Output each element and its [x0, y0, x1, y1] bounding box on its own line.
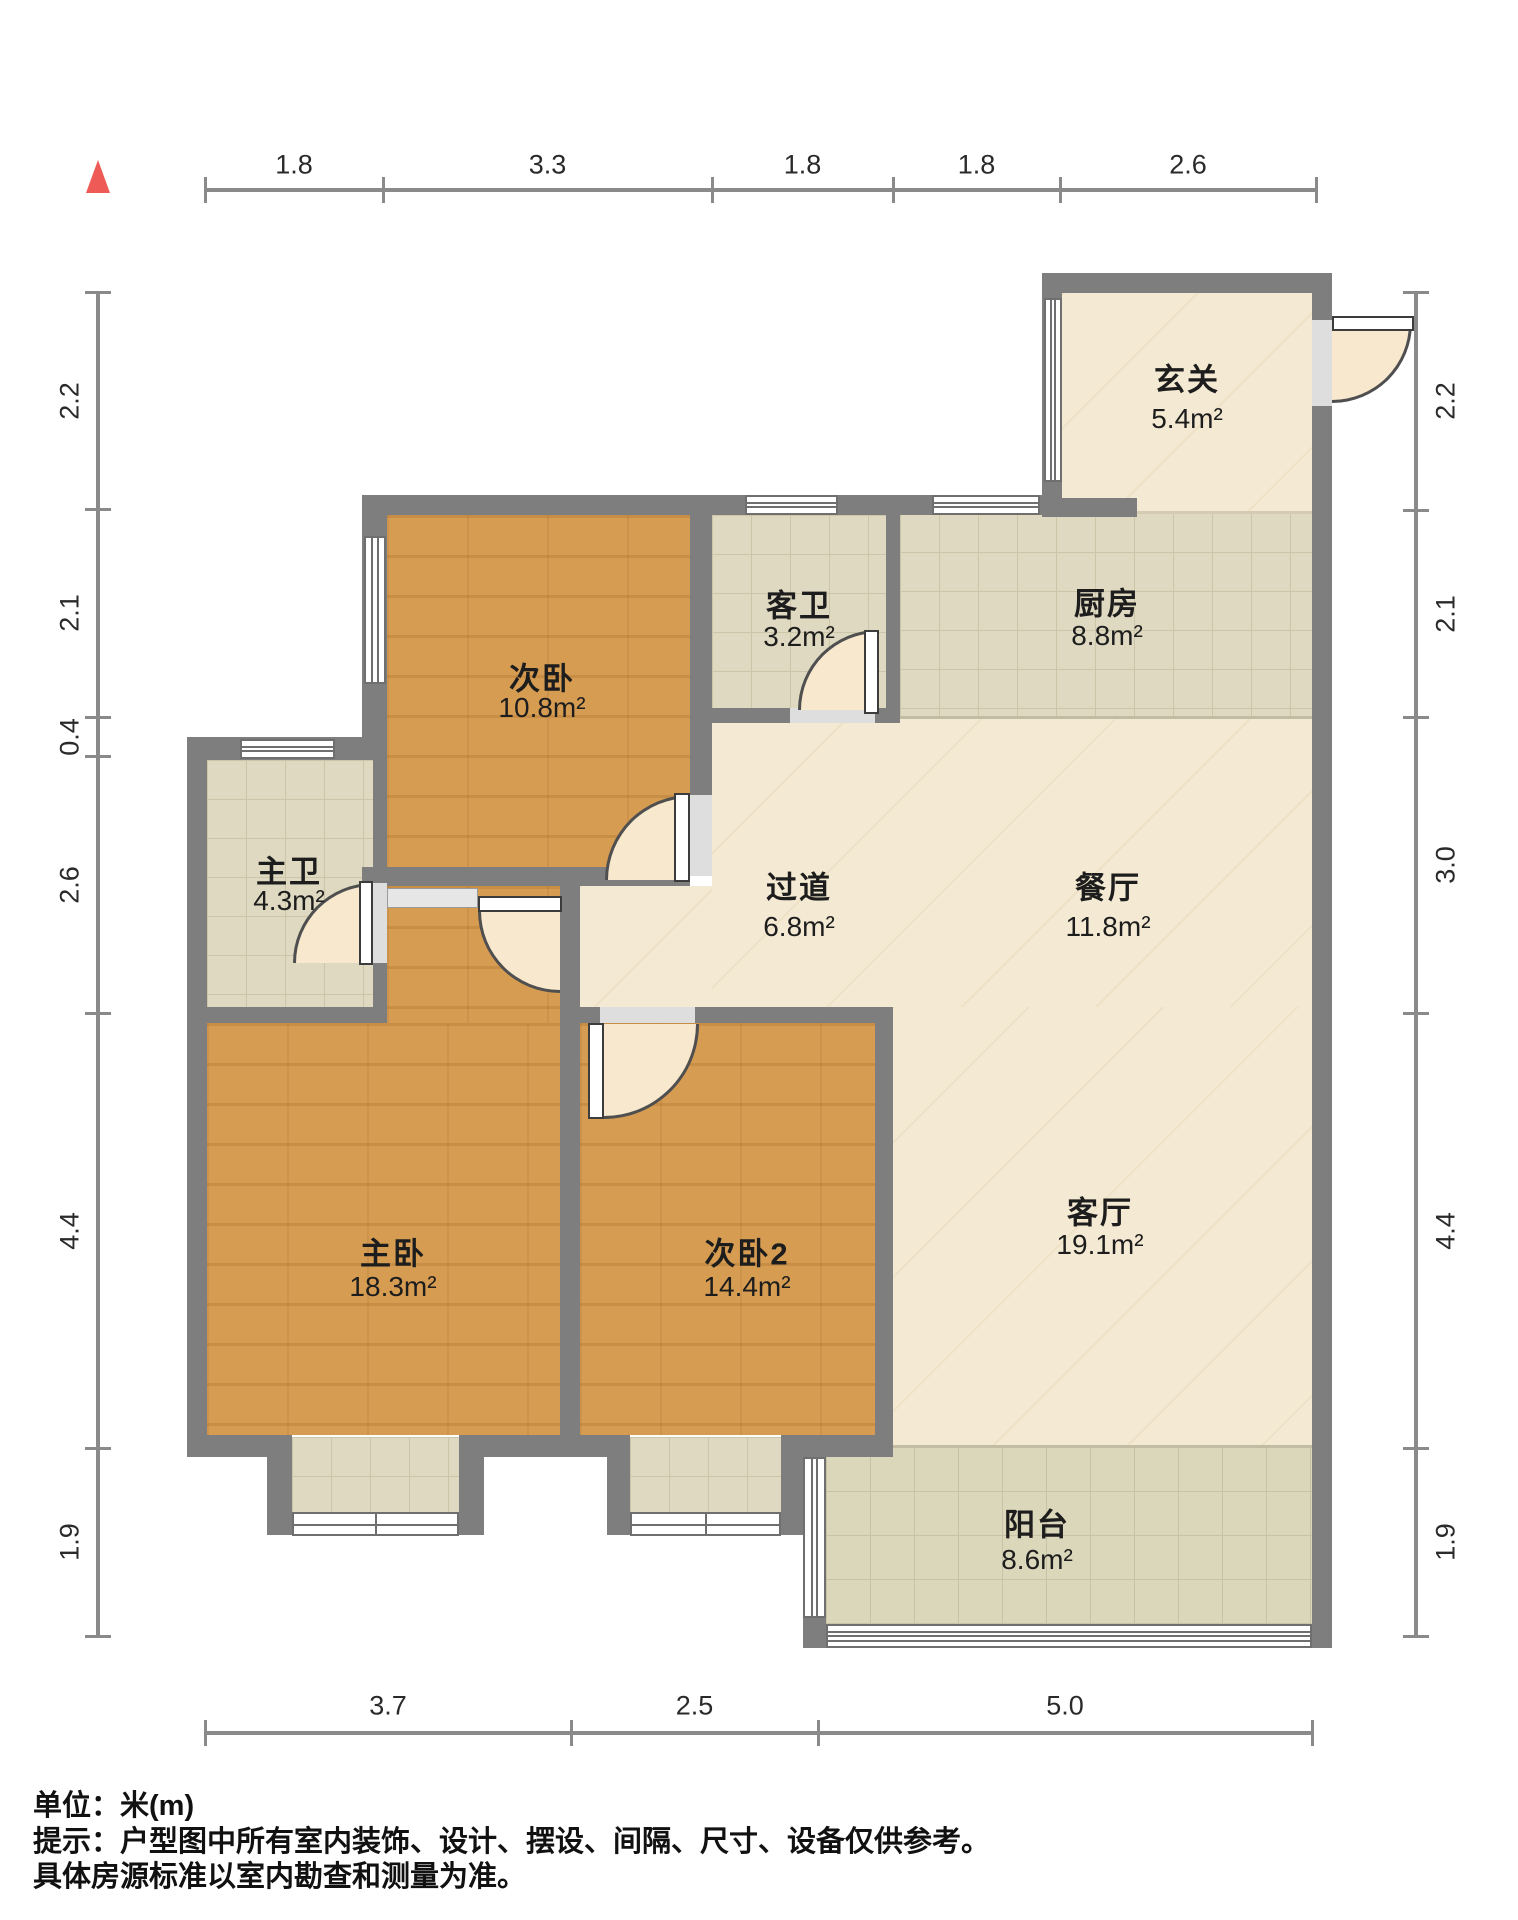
dim-line-left — [96, 292, 100, 1636]
wall — [695, 1007, 893, 1023]
dim-value-top-0: 1.8 — [275, 150, 313, 181]
dim-tick — [817, 1720, 820, 1746]
door-leaf-ciwo — [674, 793, 690, 882]
dim-value-left-4: 4.4 — [55, 1212, 86, 1250]
dim-tick — [1403, 1635, 1429, 1638]
bay-window-stub — [267, 1435, 292, 1535]
door-leaf-entry — [1332, 316, 1414, 331]
dim-value-bottom-1: 2.5 — [676, 1691, 714, 1722]
room-label-keting: 客厅 — [1067, 1188, 1133, 1233]
dim-line-bottom — [205, 1731, 1312, 1735]
dim-tick — [204, 1720, 207, 1746]
dim-value-right-2: 3.0 — [1431, 846, 1462, 884]
dim-line-top — [205, 188, 1316, 192]
room-label-xuanguan: 玄关 — [1154, 355, 1220, 400]
dim-value-right-3: 4.4 — [1431, 1212, 1462, 1250]
dim-tick — [1403, 509, 1429, 512]
dim-tick — [570, 1720, 573, 1746]
wall — [484, 1435, 607, 1457]
wall — [187, 1435, 267, 1457]
dim-tick — [1311, 1720, 1314, 1746]
boundary-living-balcony — [893, 1445, 1312, 1448]
dim-line-right — [1414, 292, 1418, 1636]
dim-value-left-3: 2.6 — [55, 866, 86, 904]
wall — [187, 737, 207, 1457]
room-area-guodao: 6.8m² — [763, 911, 835, 943]
doorway-entry — [1312, 320, 1332, 406]
room-area-ciwo2: 14.4m² — [703, 1271, 790, 1303]
room-area-keting: 19.1m² — [1056, 1229, 1143, 1261]
dim-tick — [382, 177, 385, 203]
dim-tick — [1315, 177, 1318, 203]
window — [803, 1457, 826, 1618]
wall — [373, 760, 387, 883]
dim-value-top-4: 2.6 — [1169, 150, 1207, 181]
note-tip-line2: 具体房源标准以室内勘查和测量为准。 — [33, 1853, 526, 1895]
wall — [1312, 273, 1332, 1648]
room-area-canting: 11.8m² — [1065, 911, 1150, 943]
dim-tick — [85, 508, 111, 511]
wall — [1042, 498, 1137, 517]
wall — [560, 886, 580, 1457]
dim-value-left-0: 2.2 — [55, 382, 86, 420]
door-leaf-ciwo2 — [588, 1023, 604, 1119]
dim-value-left-2: 0.4 — [55, 718, 86, 756]
wall — [1042, 273, 1332, 293]
room-area-chufang: 8.8m² — [1071, 620, 1143, 652]
dim-tick — [85, 1012, 111, 1015]
wall — [803, 1435, 893, 1457]
dim-tick — [1403, 291, 1429, 294]
room-label-yangtai: 阳台 — [1004, 1500, 1070, 1545]
room-label-guodao: 过道 — [766, 863, 832, 908]
window — [240, 739, 335, 759]
dim-tick — [1403, 1012, 1429, 1015]
doorway-zhuwo — [387, 888, 478, 908]
room-label-canting: 餐厅 — [1075, 863, 1141, 908]
wall — [690, 515, 712, 795]
room-label-ciwo2: 次卧2 — [704, 1229, 789, 1274]
dim-value-top-2: 1.8 — [784, 150, 822, 181]
doorway-zhuwei — [373, 883, 387, 963]
room-area-kewei: 3.2m² — [763, 621, 835, 653]
room-area-zhuwei: 4.3m² — [253, 885, 325, 917]
dim-value-right-4: 1.9 — [1431, 1523, 1462, 1561]
wall — [187, 1007, 387, 1023]
dim-tick — [1403, 716, 1429, 719]
dim-value-bottom-0: 3.7 — [369, 1691, 407, 1722]
dim-tick — [85, 716, 111, 719]
window — [745, 495, 838, 515]
dim-value-right-0: 2.2 — [1431, 382, 1462, 420]
dim-value-top-3: 1.8 — [958, 150, 996, 181]
room-label-zhuwo: 主卧 — [360, 1229, 426, 1274]
floor-plan: 玄关5.4m²厨房8.8m²客卫3.2m²次卧10.8m²主卫4.3m²过道6.… — [0, 0, 1518, 1920]
dim-value-bottom-2: 5.0 — [1046, 1691, 1084, 1722]
door-leaf-zhuwo — [478, 896, 562, 912]
room-area-xuanguan: 5.4m² — [1151, 403, 1223, 435]
bay-window-floor-zhuwo — [292, 1437, 459, 1512]
doorway-ciwo — [690, 795, 712, 876]
doorway-kewei — [790, 708, 875, 723]
room-floor-guodao-ext — [580, 886, 712, 1007]
bay-window-stub — [459, 1435, 484, 1535]
dim-tick — [85, 1447, 111, 1450]
bay-window — [630, 1512, 781, 1536]
bay-window — [292, 1512, 459, 1536]
balcony-railing — [826, 1624, 1312, 1648]
window — [932, 495, 1040, 515]
wall — [373, 963, 387, 1007]
wall — [577, 1007, 600, 1023]
door-swing-entry — [1332, 323, 1412, 403]
dim-tick — [1403, 1447, 1429, 1450]
dim-tick — [85, 755, 111, 758]
boundary-entry-kitchen — [1137, 511, 1312, 514]
wall — [886, 515, 900, 723]
window — [364, 536, 386, 684]
north-triangle-icon — [86, 160, 110, 193]
dim-value-top-1: 3.3 — [529, 150, 567, 181]
dim-tick — [85, 291, 111, 294]
wall — [875, 1007, 893, 1457]
room-label-kewei: 客卫 — [766, 581, 832, 626]
doorway-ciwo2 — [600, 1007, 695, 1023]
room-area-yangtai: 8.6m² — [1001, 1544, 1073, 1576]
room-area-zhuwo: 18.3m² — [349, 1271, 436, 1303]
door-leaf-zhuwei — [359, 881, 373, 965]
dim-tick — [1059, 177, 1062, 203]
dim-tick — [85, 1635, 111, 1638]
room-label-chufang: 厨房 — [1074, 579, 1140, 624]
bay-window-floor-ciwo2 — [630, 1437, 781, 1512]
window — [1044, 298, 1062, 482]
door-leaf-kewei — [864, 630, 879, 714]
dim-tick — [892, 177, 895, 203]
dim-value-left-1: 2.1 — [55, 594, 86, 632]
dim-tick — [204, 177, 207, 203]
boundary-kitchen-dining — [900, 716, 1312, 719]
room-area-ciwo: 10.8m² — [498, 692, 585, 724]
dim-value-right-1: 2.1 — [1431, 595, 1462, 633]
bay-window-stub — [781, 1435, 803, 1535]
dim-tick — [711, 177, 714, 203]
balcony-post — [803, 1618, 826, 1648]
dim-value-left-5: 1.9 — [55, 1523, 86, 1561]
bay-window-stub — [607, 1435, 630, 1535]
